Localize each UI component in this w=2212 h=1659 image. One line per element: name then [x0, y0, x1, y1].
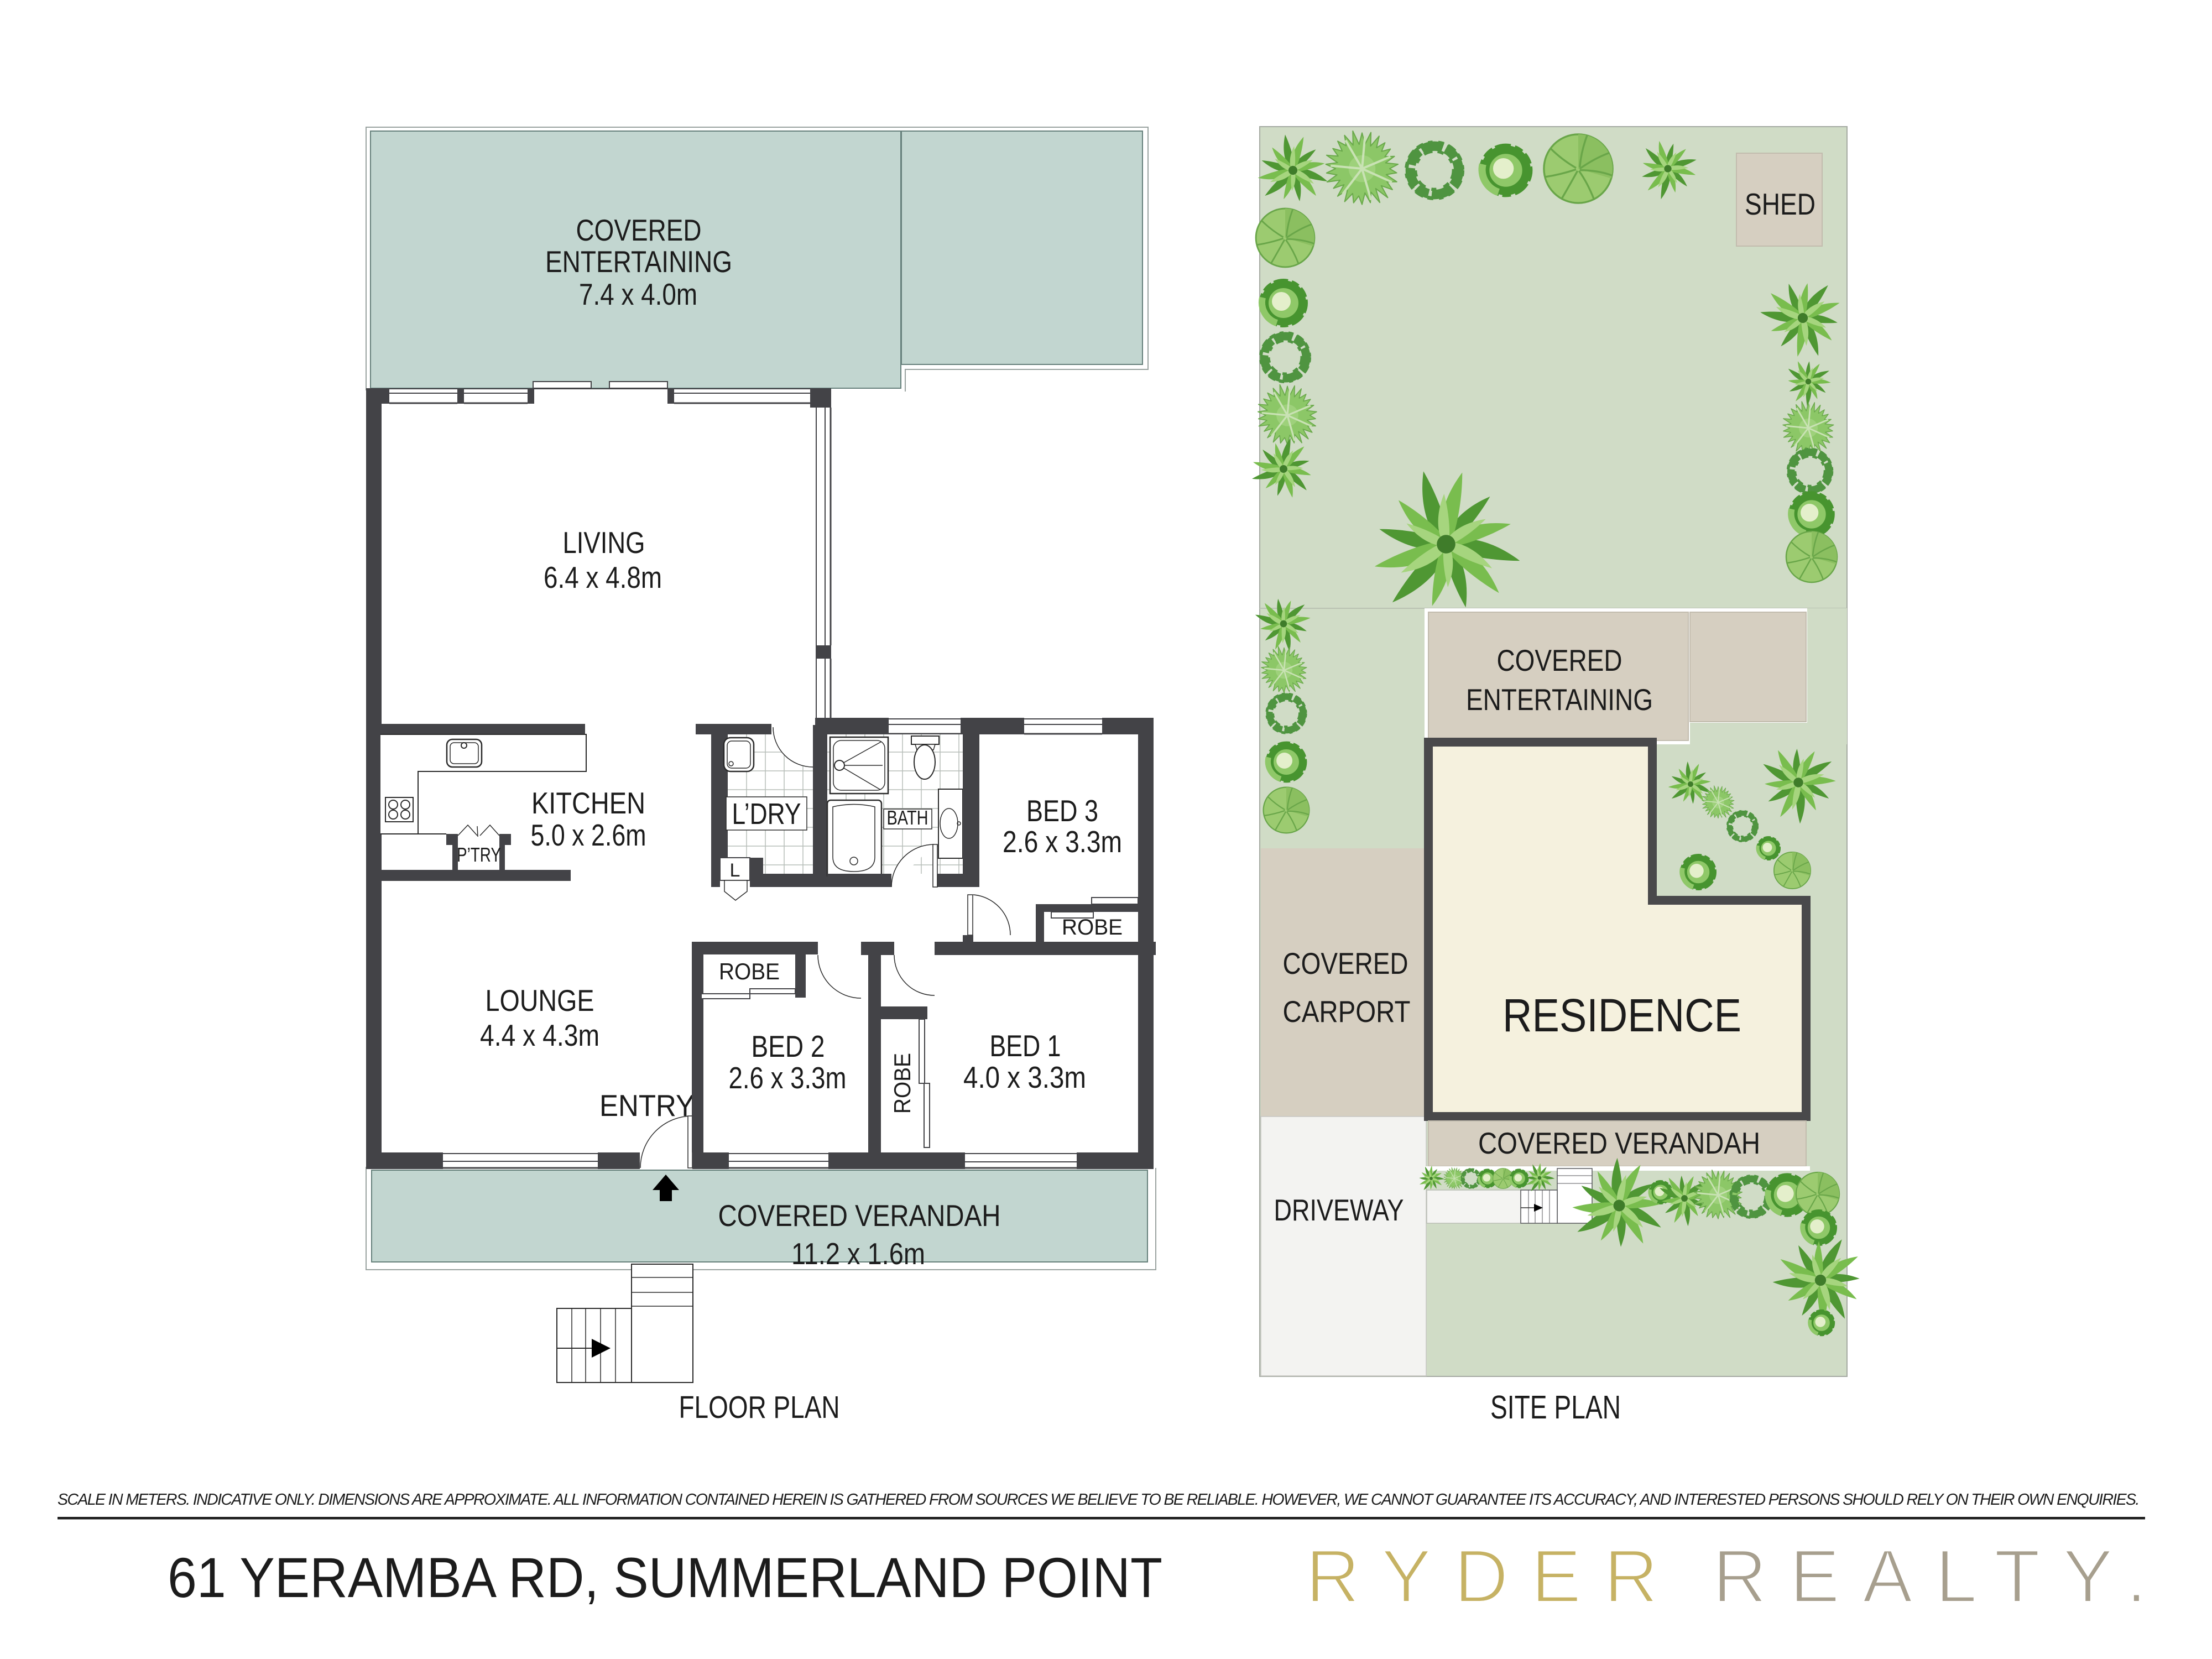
- svg-text:BED 2: BED 2: [752, 1029, 825, 1063]
- svg-text:5.0 x 2.6m: 5.0 x 2.6m: [531, 818, 646, 852]
- svg-text:COVERED: COVERED: [1497, 643, 1623, 677]
- svg-text:DRIVEWAY: DRIVEWAY: [1274, 1193, 1404, 1227]
- svg-text:SHED: SHED: [1745, 187, 1815, 221]
- svg-text:CARPORT: CARPORT: [1283, 994, 1411, 1029]
- svg-text:BED 1: BED 1: [990, 1029, 1061, 1063]
- svg-text:LIVING: LIVING: [563, 525, 645, 560]
- svg-text:ENTERTAINING: ENTERTAINING: [1466, 682, 1653, 717]
- svg-text:L’DRY: L’DRY: [732, 797, 801, 831]
- svg-text:4.4 x 4.3m: 4.4 x 4.3m: [480, 1018, 599, 1052]
- svg-text:RESIDENCE: RESIDENCE: [1503, 989, 1741, 1041]
- svg-text:LOUNGE: LOUNGE: [486, 983, 594, 1018]
- svg-text:BED 3: BED 3: [1026, 794, 1098, 828]
- svg-text:ROBE: ROBE: [1062, 915, 1123, 940]
- svg-text:4.0 x 3.3m: 4.0 x 3.3m: [963, 1060, 1086, 1094]
- svg-text:COVERED VERANDAH: COVERED VERANDAH: [718, 1198, 1001, 1233]
- svg-text:L: L: [730, 860, 740, 881]
- svg-text:BATH: BATH: [887, 806, 928, 829]
- svg-text:2.6 x 3.3m: 2.6 x 3.3m: [1003, 825, 1122, 859]
- svg-text:REALTY.: REALTY.: [1713, 1534, 2169, 1618]
- svg-text:6.4 x 4.8m: 6.4 x 4.8m: [544, 560, 662, 594]
- svg-text:ROBE: ROBE: [889, 1053, 915, 1114]
- svg-text:P’TRY: P’TRY: [457, 843, 501, 866]
- svg-text:ROBE: ROBE: [719, 958, 780, 984]
- svg-text:RYDER: RYDER: [1306, 1534, 1681, 1618]
- svg-text:COVERED VERANDAH: COVERED VERANDAH: [1478, 1126, 1760, 1160]
- svg-text:KITCHEN: KITCHEN: [531, 786, 645, 820]
- svg-text:COVERED: COVERED: [576, 213, 702, 247]
- svg-text:FLOOR PLAN: FLOOR PLAN: [679, 1390, 840, 1425]
- svg-text:2.6 x 3.3m: 2.6 x 3.3m: [729, 1061, 847, 1095]
- svg-text:7.4 x 4.0m: 7.4 x 4.0m: [579, 277, 697, 311]
- svg-text:SITE PLAN: SITE PLAN: [1490, 1389, 1621, 1426]
- svg-text:11.2 x 1.6m: 11.2 x 1.6m: [791, 1237, 925, 1271]
- svg-text:61 YERAMBA RD, SUMMERLAND POIN: 61 YERAMBA RD, SUMMERLAND POINT: [168, 1546, 1162, 1609]
- svg-text:COVERED: COVERED: [1283, 946, 1408, 980]
- svg-text:SCALE IN METERS. INDICATIVE ON: SCALE IN METERS. INDICATIVE ONLY. DIMENS…: [58, 1491, 2139, 1509]
- svg-text:ENTERTAINING: ENTERTAINING: [545, 244, 732, 279]
